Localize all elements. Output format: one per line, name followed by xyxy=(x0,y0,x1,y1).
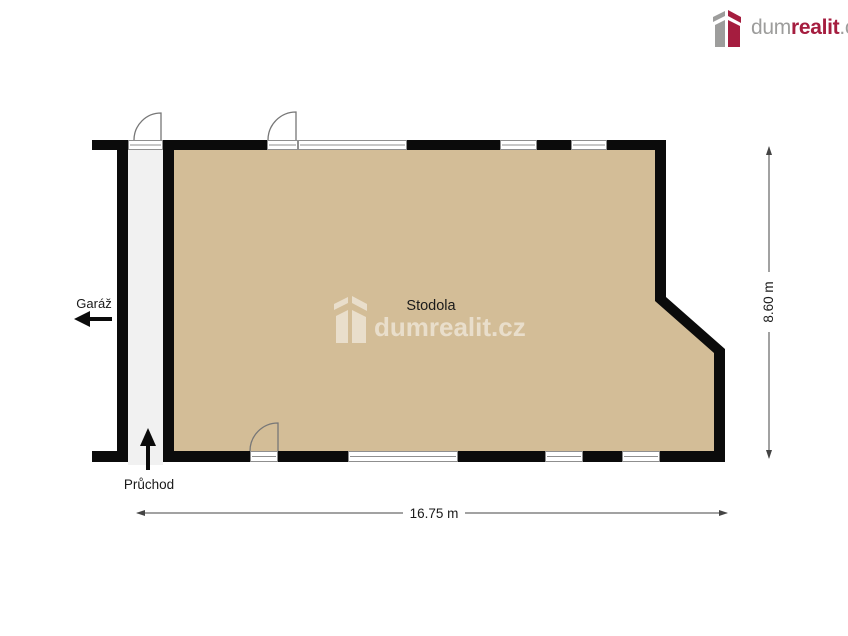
window xyxy=(299,141,407,150)
brand-logo-suffix: .cz xyxy=(839,16,848,39)
window xyxy=(546,452,583,462)
corridor-floor xyxy=(128,150,163,465)
garage-label: Garáž xyxy=(76,296,111,311)
door-opening xyxy=(268,141,298,150)
left-wall-stub-bottom xyxy=(92,451,128,462)
left-arrow-icon xyxy=(74,311,112,327)
height-dimension-label: 8.60 m xyxy=(761,281,776,322)
brand-logo: dumrealit.cz xyxy=(712,8,848,48)
brand-logo-accent: realit xyxy=(791,16,839,39)
door-opening xyxy=(251,452,278,462)
corridor-left-wall xyxy=(117,150,128,451)
window xyxy=(349,452,458,462)
window xyxy=(623,452,660,462)
window xyxy=(572,141,607,150)
width-dimension: 16.75 m xyxy=(136,506,728,521)
brand-logo-prefix: dum xyxy=(751,16,791,39)
corridor-door-opening xyxy=(129,141,163,150)
floor-plan: Garáž Průchod Stodola dumrealit.cz 16.75… xyxy=(0,0,848,636)
window xyxy=(501,141,537,150)
brand-logo-text: dumrealit.cz xyxy=(751,16,848,40)
watermark-text: dumrealit.cz xyxy=(374,312,526,342)
passage-label: Průchod xyxy=(124,477,174,492)
left-wall-stub-top xyxy=(92,140,128,150)
width-dimension-label: 16.75 m xyxy=(410,506,459,521)
dumrealit-box-icon xyxy=(712,8,743,48)
door-swing-arc xyxy=(134,113,161,140)
door-swing-arc xyxy=(268,112,296,140)
height-dimension: 8.60 m xyxy=(761,146,776,459)
